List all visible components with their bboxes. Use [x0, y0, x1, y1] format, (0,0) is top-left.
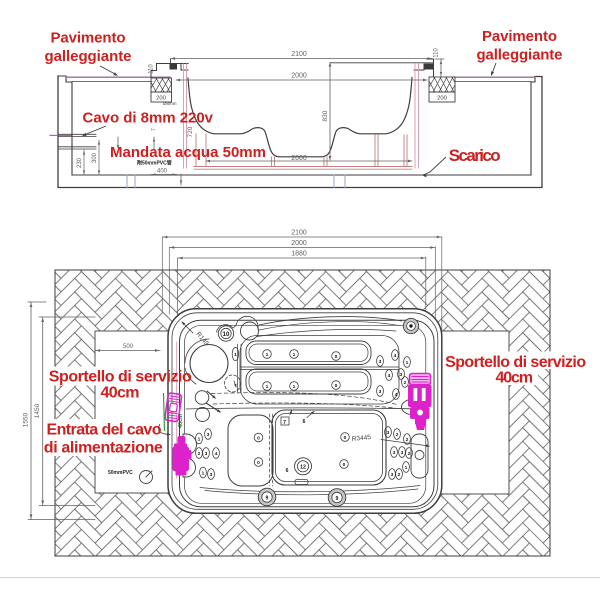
svg-text:9: 9 — [266, 495, 269, 501]
svg-text:6: 6 — [303, 419, 306, 425]
svg-text:3: 3 — [391, 472, 394, 478]
svg-text:galleggiante: galleggiante — [477, 47, 563, 64]
svg-text:1: 1 — [405, 465, 408, 471]
svg-text:10: 10 — [223, 331, 230, 338]
svg-text:830: 830 — [322, 110, 329, 121]
svg-text:1: 1 — [198, 436, 201, 442]
svg-text:2100: 2100 — [291, 51, 307, 58]
svg-text:2100: 2100 — [291, 230, 307, 237]
svg-text:2000: 2000 — [291, 240, 307, 247]
svg-text:0: 0 — [344, 435, 347, 441]
svg-text:0: 0 — [343, 462, 346, 468]
svg-text:2: 2 — [406, 437, 409, 443]
svg-text:3: 3 — [205, 451, 208, 457]
svg-text:Cavo di 8mm 220v: Cavo di 8mm 220v — [83, 109, 214, 126]
svg-text:0: 0 — [257, 435, 260, 441]
svg-text:1: 1 — [293, 384, 296, 390]
svg-text:110: 110 — [434, 48, 440, 58]
svg-text:1450: 1450 — [34, 403, 41, 418]
svg-text:Pavimento: Pavimento — [482, 28, 557, 45]
svg-text:300: 300 — [92, 152, 98, 163]
svg-text:4: 4 — [394, 353, 397, 359]
svg-text:110: 110 — [149, 64, 155, 74]
svg-text:Sportello di servizio: Sportello di servizio — [445, 354, 586, 371]
svg-text:di alimentazione: di alimentazione — [44, 440, 163, 457]
svg-text:720: 720 — [187, 126, 194, 137]
svg-text:1: 1 — [293, 352, 296, 358]
svg-text:230: 230 — [77, 157, 83, 168]
svg-text:2000: 2000 — [291, 73, 307, 80]
svg-text:3: 3 — [379, 389, 382, 395]
svg-text:1: 1 — [406, 360, 409, 366]
svg-text:40cm: 40cm — [101, 385, 140, 402]
svg-text:200: 200 — [437, 96, 447, 102]
svg-text:Entrata del cavo: Entrata del cavo — [47, 422, 162, 439]
svg-text:1880: 1880 — [291, 251, 307, 258]
svg-text:50mmPVC: 50mmPVC — [108, 470, 133, 476]
svg-text:6: 6 — [286, 468, 289, 474]
svg-text:Scarico: Scarico — [449, 146, 501, 165]
svg-text:galleggiante: galleggiante — [45, 48, 132, 65]
svg-text:7: 7 — [151, 128, 157, 131]
svg-text:Ø8mm: Ø8mm — [163, 101, 177, 106]
svg-text:9: 9 — [336, 496, 339, 502]
svg-text:4: 4 — [215, 451, 218, 457]
svg-text:500: 500 — [123, 344, 134, 350]
svg-text:2: 2 — [198, 451, 201, 457]
svg-text:12: 12 — [300, 465, 306, 471]
svg-text:3: 3 — [387, 430, 390, 436]
svg-text:4: 4 — [395, 392, 398, 398]
svg-text:40cm: 40cm — [178, 414, 184, 428]
svg-text:Sportello di servizio: Sportello di servizio — [49, 369, 192, 386]
svg-text:2: 2 — [404, 380, 407, 386]
svg-text:2000: 2000 — [291, 155, 307, 162]
svg-text:1550: 1550 — [23, 412, 30, 427]
svg-text:1: 1 — [266, 352, 269, 358]
svg-text:0: 0 — [257, 460, 260, 466]
svg-text:Pavimento: Pavimento — [51, 30, 126, 47]
svg-text:3: 3 — [207, 432, 210, 438]
svg-text:0: 0 — [335, 354, 338, 360]
svg-text:3: 3 — [401, 450, 404, 456]
svg-text:2: 2 — [408, 451, 411, 457]
svg-text:0: 0 — [335, 383, 338, 389]
svg-text:3: 3 — [393, 450, 396, 456]
svg-text:40cm: 40cm — [496, 370, 534, 387]
svg-text:3: 3 — [400, 372, 403, 378]
svg-text:Mandata acqua 50mm: Mandata acqua 50mm — [110, 144, 266, 161]
svg-text:1: 1 — [234, 352, 237, 358]
svg-text:400: 400 — [157, 169, 168, 175]
svg-text:4: 4 — [388, 373, 391, 379]
svg-text:1: 1 — [266, 384, 269, 390]
svg-text:3: 3 — [379, 359, 382, 365]
svg-text:2: 2 — [398, 472, 401, 478]
svg-text:2: 2 — [396, 432, 399, 438]
svg-text:3: 3 — [210, 472, 213, 478]
svg-text:7: 7 — [283, 420, 286, 426]
svg-text:1: 1 — [202, 470, 205, 476]
